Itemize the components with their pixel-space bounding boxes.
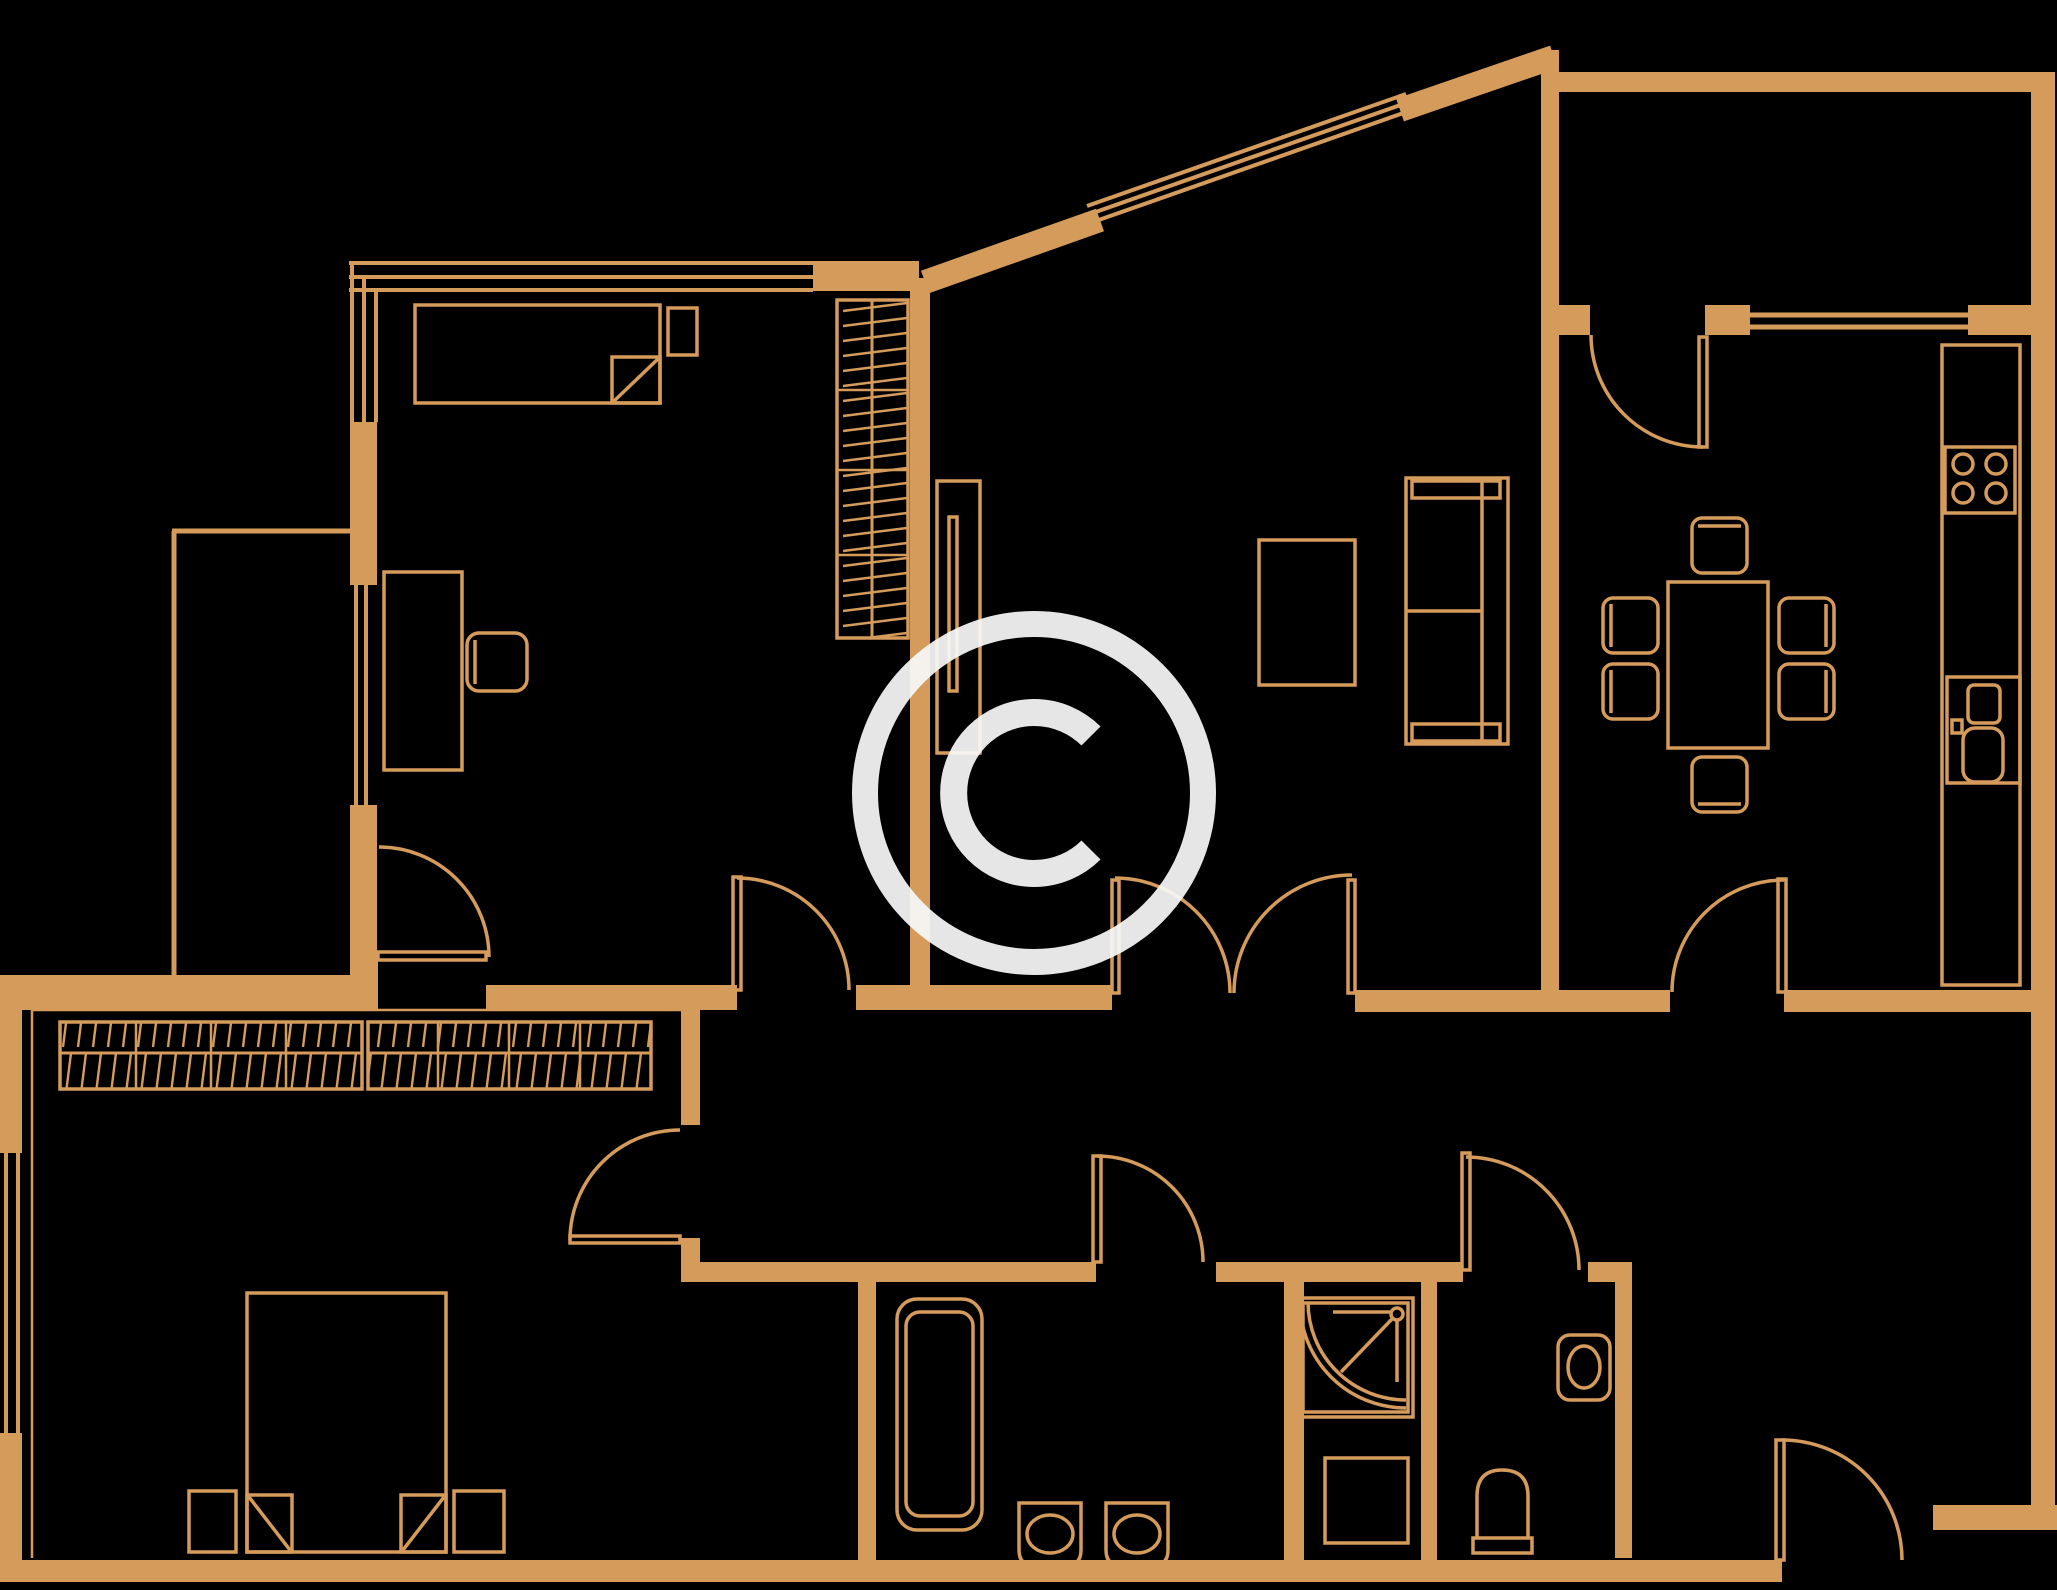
wall-left-lower (0, 1433, 22, 1560)
door-leaf-bedroom2 (570, 1236, 680, 1243)
door-leaf-entrance (1776, 1440, 1784, 1560)
shower-arm-diagonal (1341, 1319, 1392, 1372)
windows (6, 94, 1968, 1558)
single-bed (415, 305, 660, 403)
door-arc-wc (1466, 1157, 1579, 1270)
window-diagonal-line2 (1090, 102, 1409, 214)
sink-basin (1963, 728, 2003, 782)
sink-drainer (1968, 685, 2000, 723)
wall-bedroom1-left-b (350, 805, 377, 980)
walls (0, 50, 2057, 1582)
wall-shower-top (1216, 1262, 1463, 1282)
door-leaf-kitchen-hall (1778, 879, 1786, 992)
wall-top-right (1550, 72, 2055, 92)
single-bed-fold-diagonal (612, 357, 660, 403)
wall-kitchen-left (1541, 50, 1559, 992)
hob-burner-4 (1986, 483, 2006, 503)
door-arc-living-right (1234, 875, 1352, 993)
basin-right-bowl (1114, 1515, 1160, 1553)
door-arc-bathroom (1097, 1156, 1203, 1262)
wc-corner-basin-bowl (1568, 1346, 1600, 1388)
double-bed-fold-left-diag (249, 1497, 290, 1550)
wall-living-left (910, 278, 930, 993)
floor-plan-screenshot: © (0, 0, 2057, 1590)
wall-shower-wc-divider (1421, 1282, 1437, 1560)
door-leaf-bathroom (1093, 1156, 1101, 1262)
door-leaf-living-right (1348, 880, 1355, 993)
door-arc-bedroom2 (570, 1130, 680, 1240)
double-bed-fold-right-diag (403, 1497, 444, 1550)
toilet-bowl (1477, 1470, 1528, 1538)
wall-bathroom-top (681, 1262, 1096, 1282)
door-leaf-kitchen-top (1699, 337, 1707, 447)
wall-kitchen-top-c (1968, 305, 2031, 335)
hob-burner-1 (1953, 454, 1973, 474)
window-diagonal-line3 (1093, 110, 1412, 222)
toilet-tank (1473, 1538, 1532, 1553)
nightstand-bedroom1 (668, 308, 697, 355)
copyright-c (954, 713, 1091, 874)
bathtub (897, 1299, 982, 1530)
storage-hatched (60, 300, 908, 1089)
wall-bedroom1-left-a (350, 422, 377, 585)
coffee-table (1259, 540, 1355, 685)
sofa-armrest-bottom (1412, 724, 1500, 741)
wall-left-upper (0, 1005, 22, 1153)
door-arc-kitchen-top (1591, 335, 1703, 447)
window-diagonal-line1 (1087, 94, 1406, 206)
double-bed (247, 1293, 446, 1552)
door-arc-bedroom1 (379, 847, 489, 957)
door-leaf-bedroom1b (733, 877, 741, 990)
wall-bedroom2-right-b (681, 1238, 700, 1282)
wall-hall-seg1 (0, 975, 350, 1010)
tv-screen (949, 517, 957, 691)
kitchen-counter (1942, 345, 2020, 985)
wall-hall-seg3 (856, 985, 1112, 1010)
dining-table (1668, 582, 1768, 748)
wall-hall-seg4 (1355, 990, 1670, 1012)
wall-kitchen-top-a (1541, 305, 1590, 335)
wall-wc-right (1615, 1262, 1632, 1558)
wall-bathroom-left (858, 1282, 876, 1560)
door-leaf-wc (1462, 1153, 1470, 1270)
shower-head (1391, 1308, 1403, 1320)
doors (378, 335, 1902, 1560)
sink-unit (1947, 677, 2020, 783)
shower-door-arc-1 (1300, 1302, 1406, 1408)
basin-left-bowl (1027, 1515, 1073, 1553)
wall-right (2031, 72, 2055, 1530)
wall-kitchen-top-b (1705, 305, 1750, 335)
wall-bottom (0, 1560, 1782, 1582)
floor-plan-svg: © (0, 0, 2057, 1590)
nightstand-right (454, 1491, 504, 1552)
wall-corner-block-top (813, 261, 919, 291)
bathtub-inner (906, 1312, 973, 1516)
washing-machine (1325, 1458, 1408, 1543)
wall-entry-corner (1933, 1505, 2057, 1530)
door-leaf-bedroom1 (378, 952, 486, 960)
hob-burner-3 (1953, 483, 1973, 503)
wall-diagonal-lower (925, 220, 1100, 282)
sofa-armrest-top (1412, 481, 1500, 498)
door-arc-bedroom1b (737, 878, 849, 990)
hob-burner-2 (1986, 454, 2006, 474)
door-arc-kitchen-hall (1672, 880, 1784, 992)
sink-tap (1952, 720, 1962, 733)
wall-bedroom2-right-a (681, 1010, 700, 1125)
door-arc-entrance (1782, 1440, 1902, 1560)
desk (384, 572, 462, 770)
wall-hall-seg5 (1784, 990, 2031, 1012)
nightstand-left (189, 1491, 236, 1552)
wall-hall-seg2 (486, 985, 737, 1010)
wall-diagonal-upper (1400, 57, 1554, 110)
